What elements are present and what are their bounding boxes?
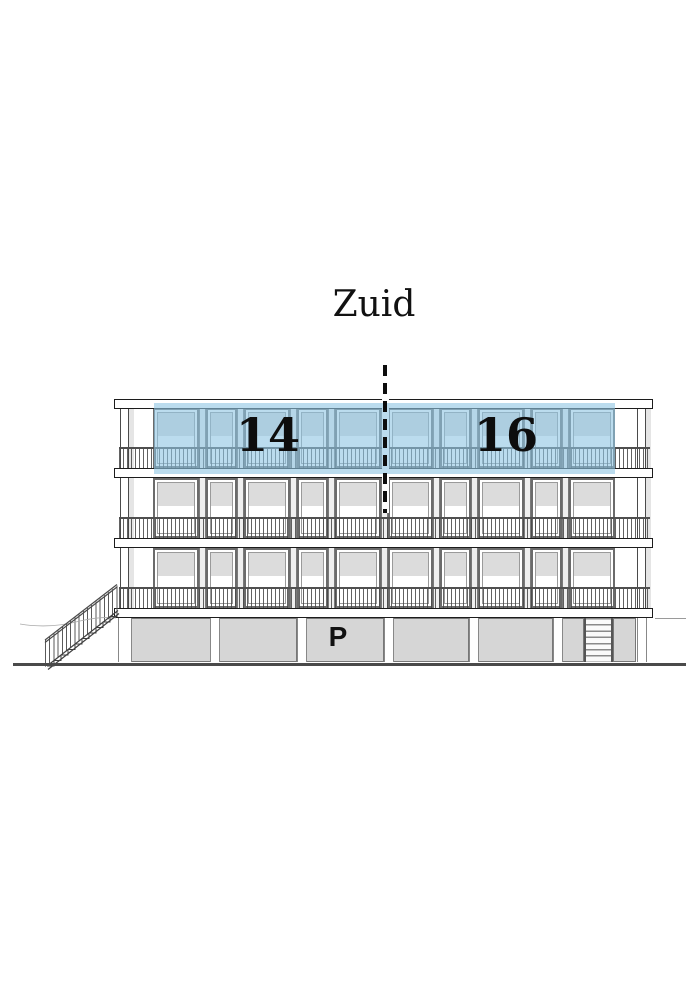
parking-column — [384, 618, 394, 662]
left-exterior-stair — [10, 575, 125, 670]
floor-slab — [114, 538, 653, 548]
parking-column — [469, 618, 479, 662]
parking-panel — [218, 618, 297, 662]
floor-slab — [114, 608, 653, 618]
parking-panel — [392, 618, 469, 662]
elevation-title: Zuid — [274, 284, 474, 325]
unit-14-label[interactable]: 14 — [223, 408, 313, 462]
ground-level-line — [655, 618, 686, 619]
ground-line — [13, 663, 686, 666]
ladder-stair-icon — [584, 618, 613, 662]
unit-16-label[interactable]: 16 — [461, 408, 551, 462]
section-cut-line-icon — [383, 365, 387, 513]
parking-column — [297, 618, 307, 662]
parking-column — [553, 618, 563, 662]
parking-panel — [561, 618, 584, 662]
balcony-railing — [119, 517, 650, 540]
parking-panel — [613, 618, 636, 662]
parking-label: P — [318, 621, 358, 653]
balcony-railing — [119, 587, 650, 610]
parking-column — [210, 618, 220, 662]
elevation-drawing: Zuid P 14 16 — [0, 0, 700, 1000]
parking-panel — [477, 618, 553, 662]
parking-column — [637, 618, 647, 662]
